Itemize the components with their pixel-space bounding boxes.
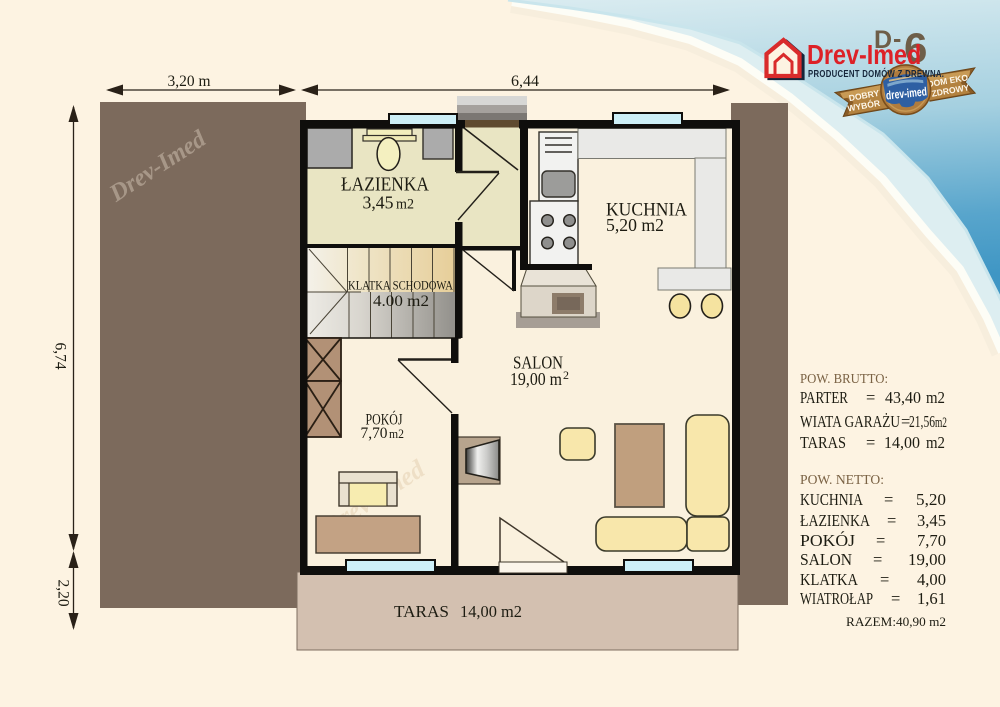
- svg-text:PRODUCENT DOMÓW Z DREWNA.: PRODUCENT DOMÓW Z DREWNA.: [808, 67, 944, 80]
- svg-text:=: =: [866, 388, 875, 407]
- svg-text:m2: m2: [396, 197, 414, 213]
- svg-text:19,00: 19,00: [908, 550, 946, 569]
- svg-text:POKÓJ: POKÓJ: [800, 531, 856, 550]
- svg-text:7,70: 7,70: [361, 425, 388, 442]
- svg-text:SALON: SALON: [800, 550, 852, 569]
- svg-text:19,00 m: 19,00 m: [510, 369, 562, 389]
- svg-text:m2: m2: [935, 415, 947, 431]
- svg-text:TARAS: TARAS: [800, 433, 846, 452]
- svg-text:KUCHNIA: KUCHNIA: [800, 490, 863, 509]
- svg-text:6,74: 6,74: [51, 342, 68, 369]
- svg-text:4.00 m2: 4.00 m2: [373, 293, 429, 310]
- svg-text:2,20: 2,20: [54, 579, 71, 606]
- svg-text:m2: m2: [389, 427, 404, 441]
- svg-text:43,40: 43,40: [885, 388, 921, 407]
- svg-text:3,20 m: 3,20 m: [168, 73, 211, 90]
- svg-text:=: =: [887, 511, 896, 530]
- svg-text:7,70: 7,70: [917, 531, 946, 550]
- svg-text:=: =: [891, 589, 900, 608]
- svg-text:=: =: [876, 531, 885, 550]
- svg-text:KLATKA SCHODOWA: KLATKA SCHODOWA: [348, 277, 453, 292]
- svg-text:6,44: 6,44: [511, 73, 539, 90]
- svg-text:14,00 m2: 14,00 m2: [460, 602, 522, 621]
- svg-text:4,00: 4,00: [917, 570, 946, 589]
- svg-text:KLATKA: KLATKA: [800, 570, 858, 589]
- svg-text:21,56: 21,56: [909, 412, 935, 431]
- svg-text:RAZEM:40,90 m2: RAZEM:40,90 m2: [846, 614, 946, 629]
- svg-text:=: =: [866, 433, 875, 452]
- svg-text:POW. BRUTTO:: POW. BRUTTO:: [800, 372, 888, 387]
- svg-text:PARTER: PARTER: [800, 388, 848, 407]
- svg-text:2: 2: [563, 368, 569, 382]
- svg-text:Drev-Imed: Drev-Imed: [807, 40, 921, 70]
- svg-text:3,45: 3,45: [363, 193, 394, 213]
- svg-text:=: =: [884, 490, 893, 509]
- svg-text:=: =: [880, 570, 889, 589]
- svg-text:1,61: 1,61: [917, 589, 946, 608]
- svg-text:ŁAZIENKA: ŁAZIENKA: [800, 511, 870, 530]
- svg-text:5,20 m2: 5,20 m2: [606, 215, 664, 235]
- svg-text:m2: m2: [926, 388, 945, 407]
- svg-text:=: =: [873, 550, 882, 569]
- svg-text:3,45: 3,45: [917, 511, 946, 530]
- svg-text:14,00: 14,00: [884, 433, 920, 452]
- svg-text:m2: m2: [926, 433, 945, 452]
- svg-text:POW. NETTO:: POW. NETTO:: [800, 473, 884, 488]
- svg-text:5,20: 5,20: [916, 490, 946, 509]
- svg-text:WIATROŁAP: WIATROŁAP: [800, 589, 873, 608]
- svg-text:TARAS: TARAS: [394, 602, 449, 621]
- svg-text:WIATA GARAŻU: WIATA GARAŻU: [800, 412, 900, 431]
